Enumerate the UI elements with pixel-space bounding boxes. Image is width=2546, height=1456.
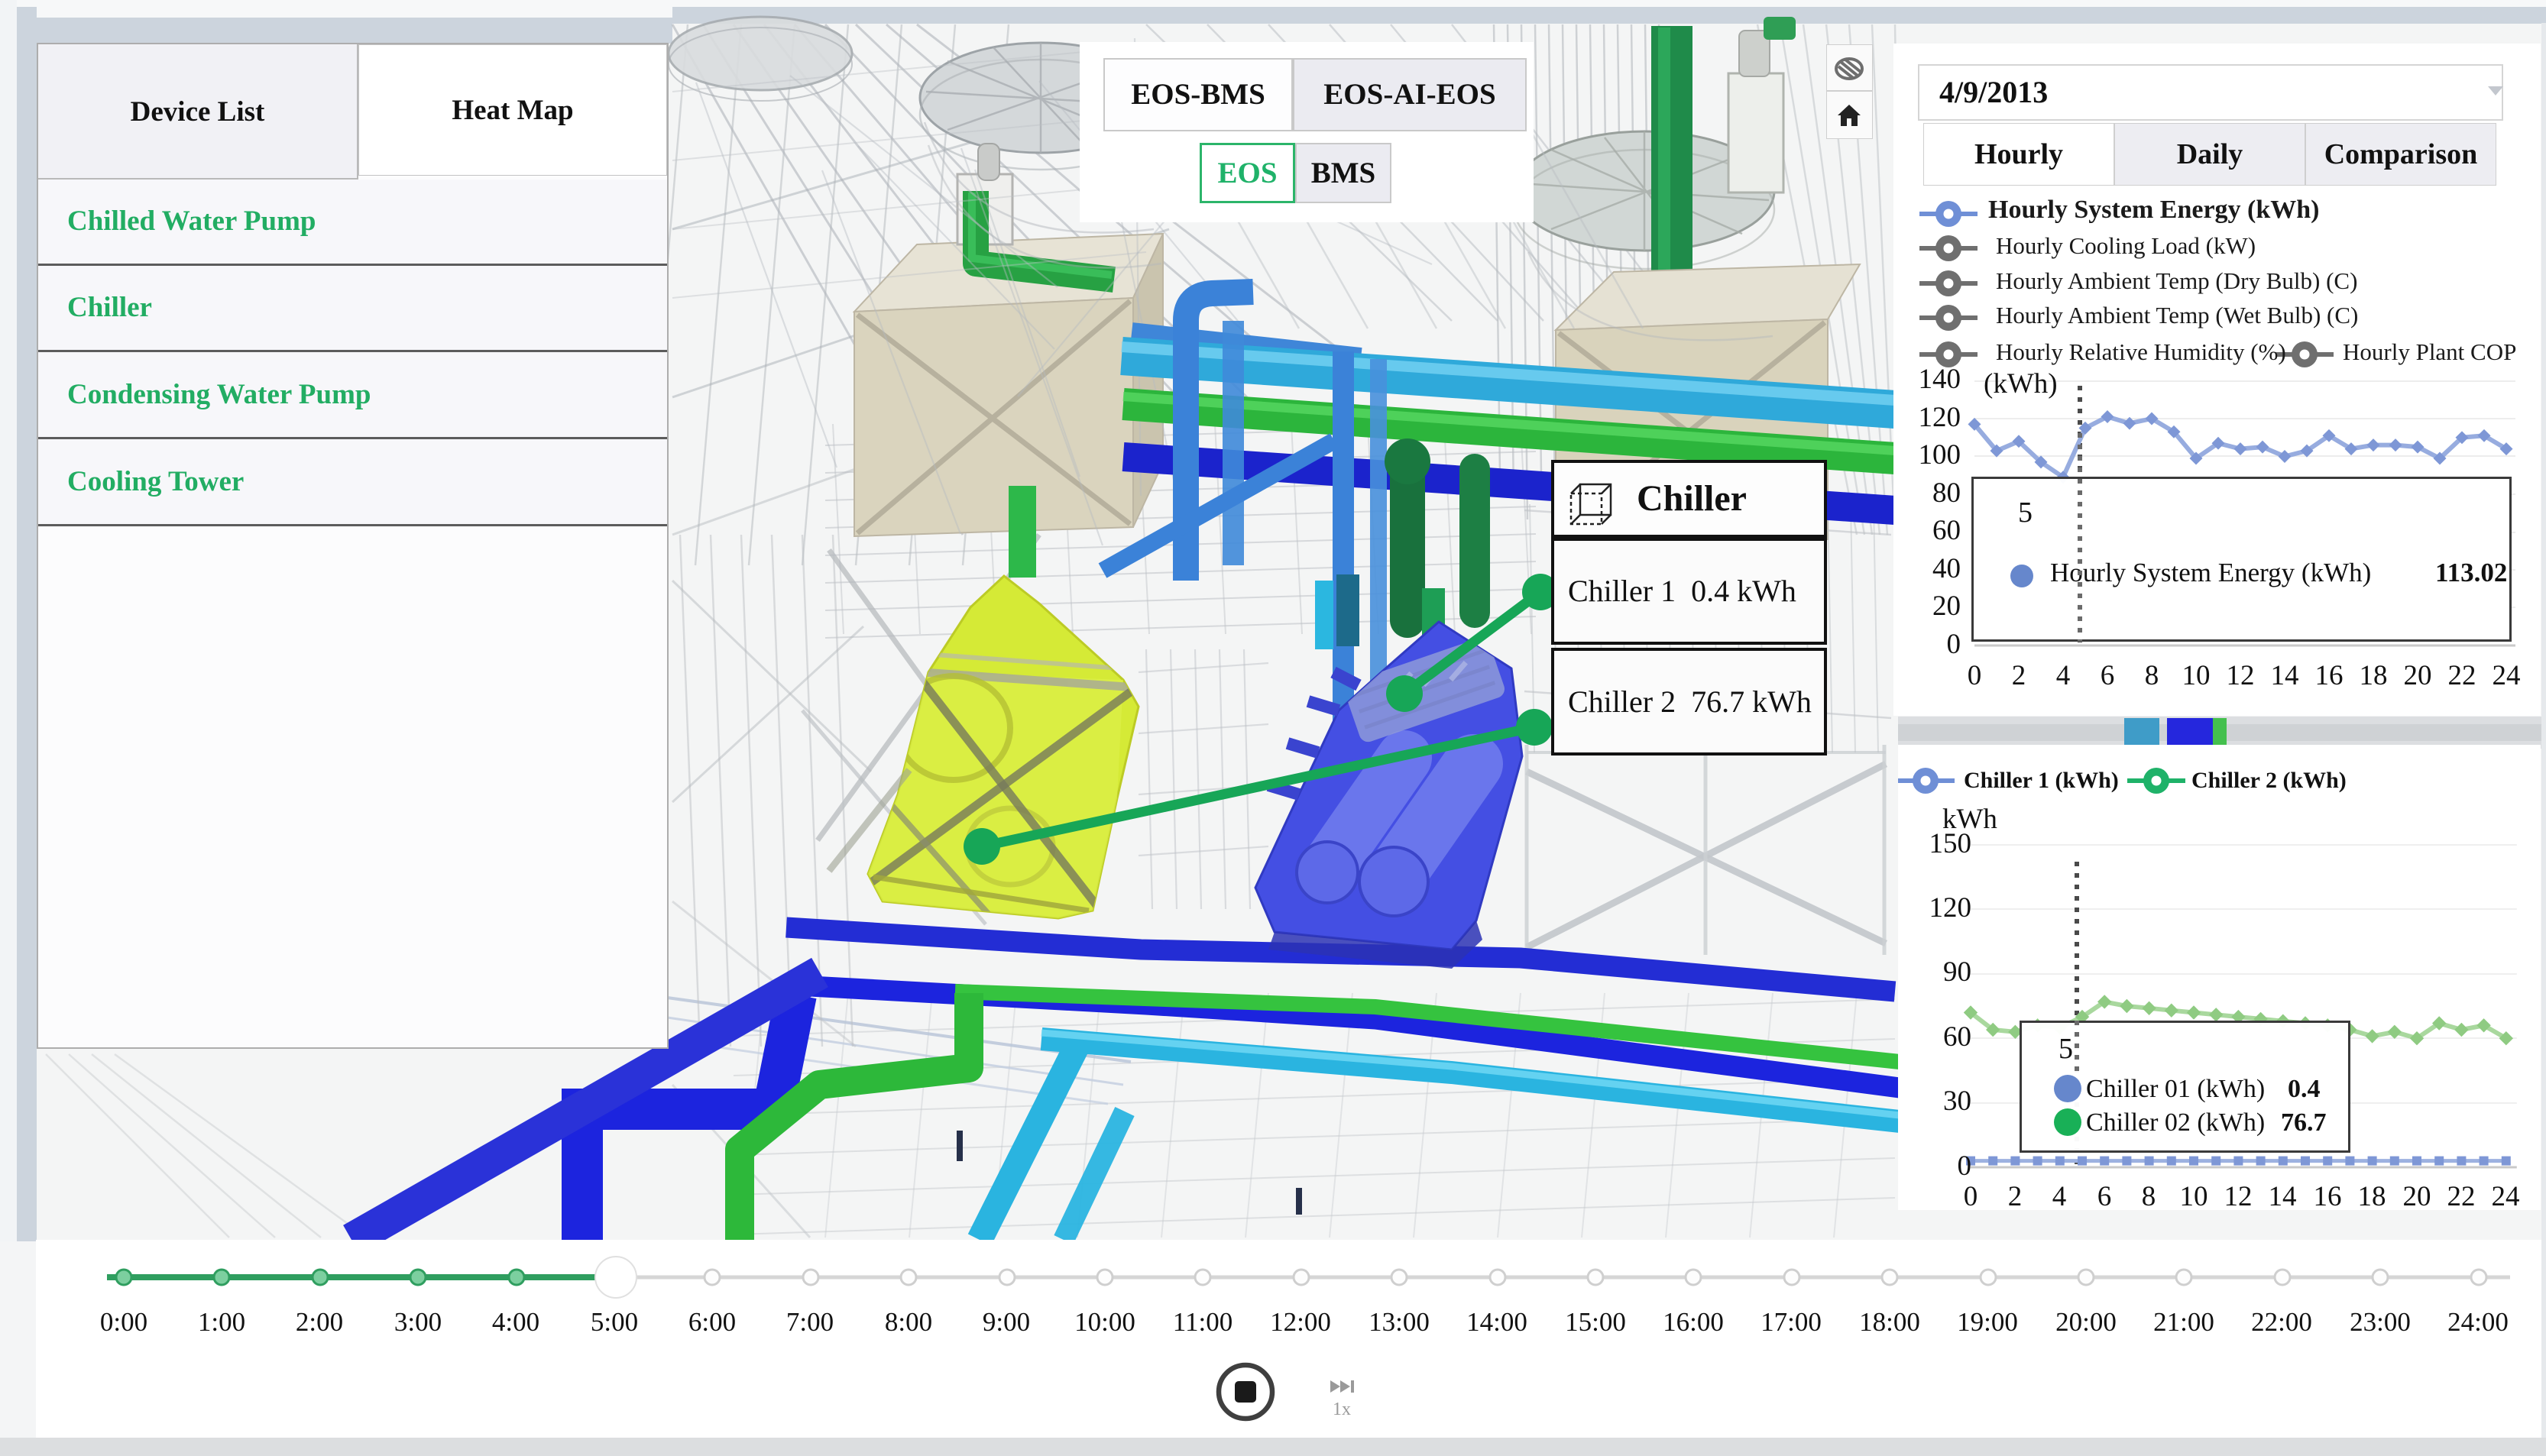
svg-text:1x: 1x	[1333, 1399, 1351, 1419]
